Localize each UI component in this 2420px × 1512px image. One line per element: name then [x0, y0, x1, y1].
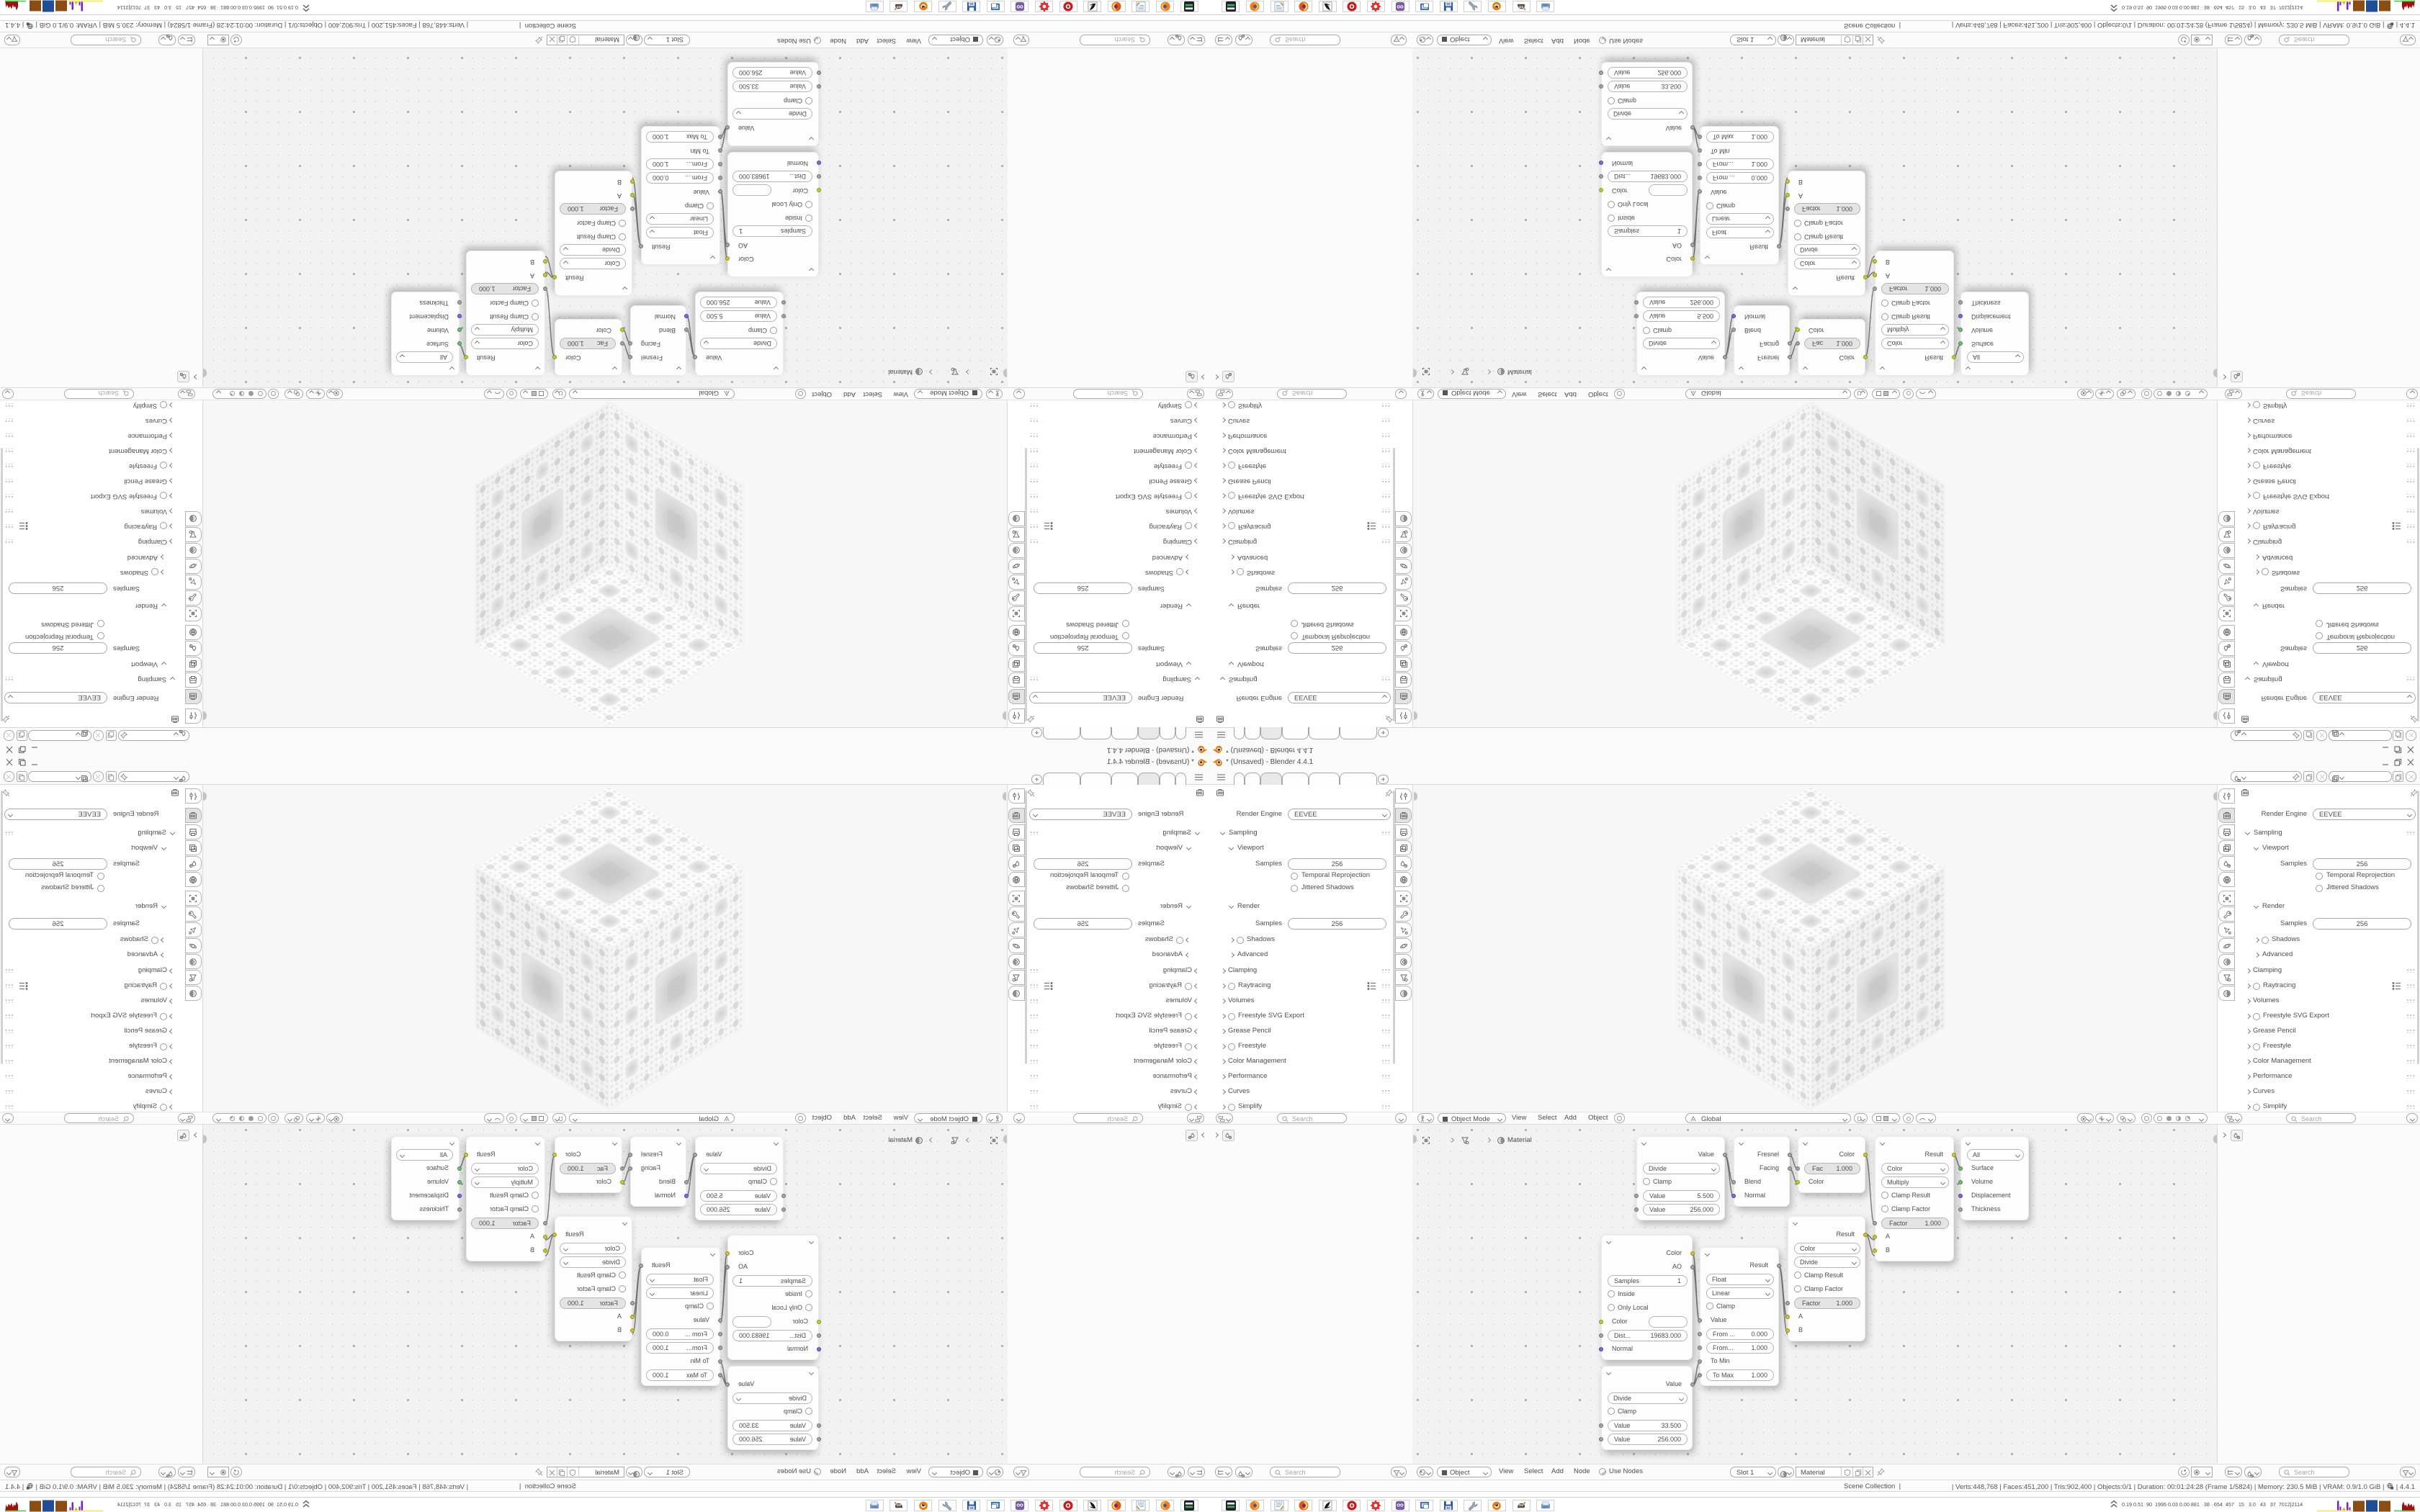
- svg-text:64: 64: [969, 2, 973, 6]
- svg-text:64: 64: [1447, 1506, 1451, 1510]
- svg-text:64: 64: [969, 1506, 973, 1510]
- svg-text:64: 64: [1447, 2, 1451, 6]
